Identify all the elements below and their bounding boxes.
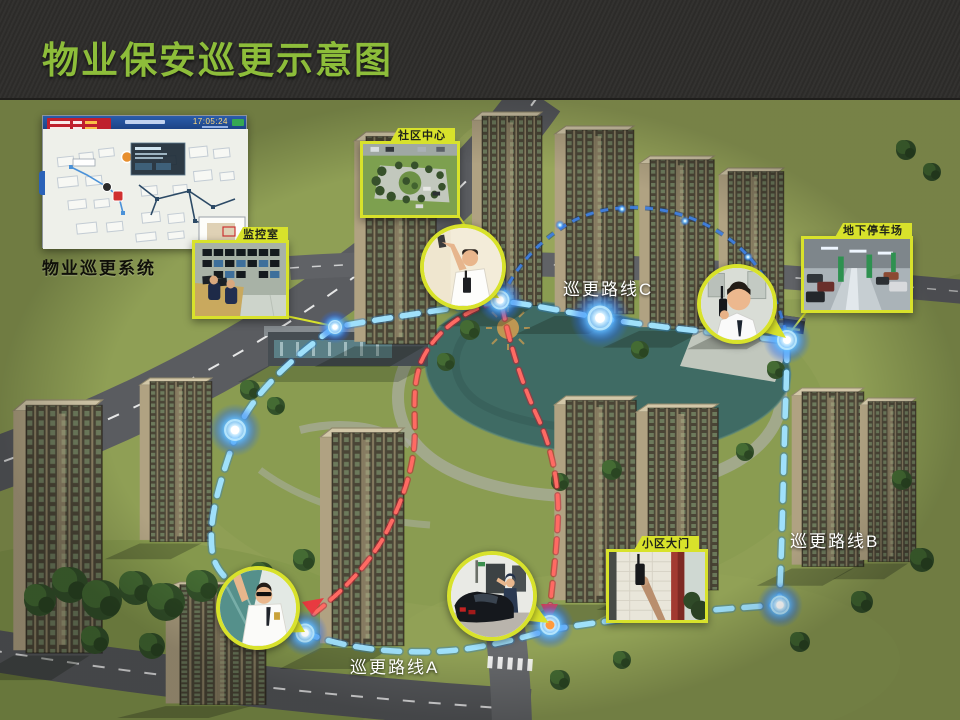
system-caption: 物业巡更系统 [42,254,156,279]
page-title: 物业保安巡更示意图 [0,0,960,84]
patrol-system-screenshot: 17:05:24 [42,115,247,248]
community-center-photo [363,144,457,215]
main-gate-label: 小区大门 [633,536,699,552]
map-guard-marker [103,183,112,192]
map-alert-marker [113,191,123,201]
system-date-placeholder [202,126,228,128]
photo-underground-parking: 地下停车场 [801,236,913,313]
underground-parking-photo [804,239,910,310]
route-c-label: 巡更路线C [563,275,653,300]
system-map [43,129,248,249]
route-a-label: 巡更路线A [350,653,439,678]
guard-checkin-photo [424,228,502,306]
guard-radio-callout [697,264,777,344]
monitoring-room-photo [195,243,286,316]
system-status-badge [232,119,244,126]
community-center-label: 社区中心 [389,128,455,144]
photo-main-gate: 小区大门 [606,549,708,623]
photo-monitoring-room: 监控室 [192,240,289,319]
main-gate-photo [609,552,705,620]
guard-inspect-photo [220,570,296,646]
patrol-diagram-slide: 物业保安巡更示意图 17:05:24 [0,0,960,720]
route-b-label: 巡更路线B [790,527,879,552]
monitoring-room-label: 监控室 [234,227,288,243]
map-tooltip [131,143,185,175]
alert-value-bar [85,121,97,124]
guard-radio-photo [701,268,773,340]
guard-checkin-callout [420,224,506,310]
alert-text-bar [50,121,70,124]
underground-parking-label: 地下停车场 [834,223,912,239]
alert-text-bar [73,121,82,124]
slide-header: 物业保安巡更示意图 [0,0,960,100]
system-clock: 17:05:24 [193,117,228,126]
guard-inspect-callout [216,566,300,650]
guard-gate-callout [447,551,537,641]
guard-gate-photo [451,555,533,637]
system-side-tab [39,171,45,195]
system-title-placeholder [125,120,165,124]
photo-community-center: 社区中心 [360,141,460,218]
